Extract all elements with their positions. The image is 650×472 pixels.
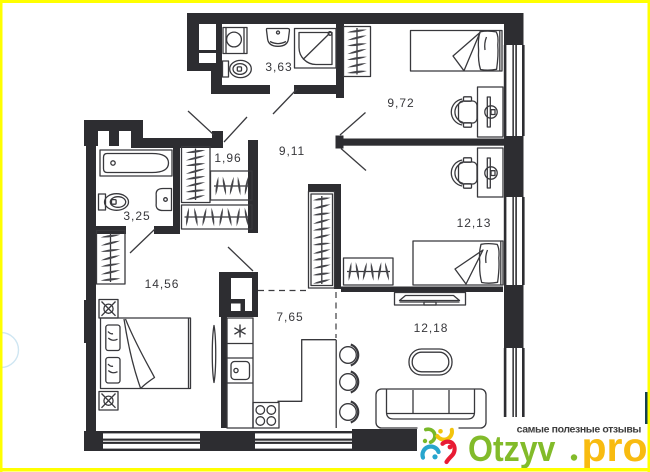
svg-text:9,72: 9,72 xyxy=(387,96,414,110)
svg-text:Otzyv: Otzyv xyxy=(468,429,555,469)
svg-text:3,63: 3,63 xyxy=(265,60,292,74)
svg-text:3,25: 3,25 xyxy=(123,209,150,223)
svg-text:7,65: 7,65 xyxy=(276,310,303,324)
svg-text:14,56: 14,56 xyxy=(145,277,180,291)
svg-text:pro: pro xyxy=(582,424,648,470)
svg-text:9,11: 9,11 xyxy=(279,144,305,158)
svg-text:12,13: 12,13 xyxy=(457,216,492,230)
svg-text:12,18: 12,18 xyxy=(414,321,449,335)
svg-text:1,96: 1,96 xyxy=(214,151,241,165)
